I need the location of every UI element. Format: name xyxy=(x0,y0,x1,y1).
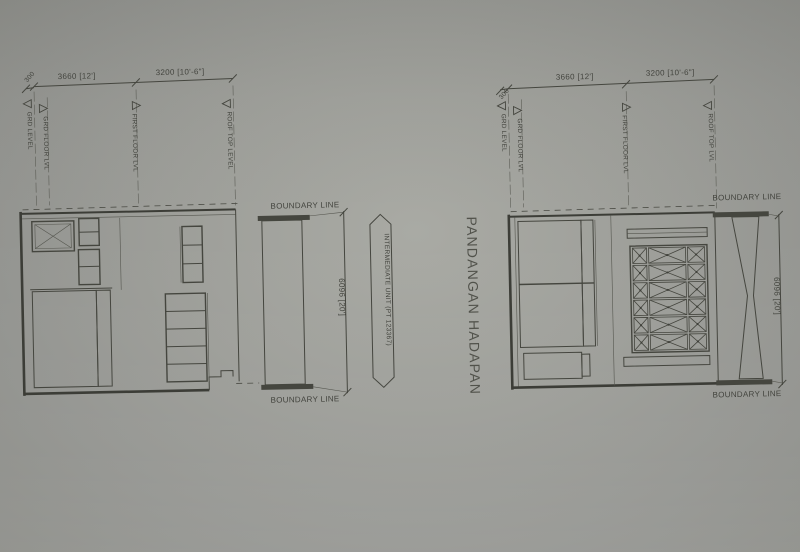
level-marker-icon xyxy=(513,106,521,114)
right-elevation-view: 3660 [12'] 3200 [10'-6"] 300 GRD LEVEL G… xyxy=(496,66,787,404)
low-louvre-panel xyxy=(524,352,591,379)
grd-level-label: GRD LEVEL xyxy=(500,114,508,152)
dim-offset-label: 300 xyxy=(23,70,36,84)
level-marker-icon xyxy=(703,101,711,109)
height-dim-label: 6096 [20'] xyxy=(337,278,347,316)
grd-floor-level-label: GRD FLOOR LVL xyxy=(42,116,50,170)
dim-offset-label: 300 xyxy=(498,88,511,102)
grd-floor-level-label: GRD FLOOR LVL xyxy=(516,118,524,172)
boundary-fence-strip xyxy=(258,215,314,390)
grd-level-label: GRD LEVEL xyxy=(25,112,33,150)
dim-span-right-label: 3200 [10'-6"] xyxy=(156,67,205,77)
level-marker-icon xyxy=(23,100,31,108)
grille-gate xyxy=(621,228,710,367)
height-dim-label: 6096 [20'] xyxy=(772,277,782,315)
glazed-wall-panel xyxy=(518,220,598,348)
boundary-line-bottom-label: BOUNDARY LINE xyxy=(712,389,781,399)
louvre-panel xyxy=(165,293,209,382)
dim-span-left-label: 3660 [12'] xyxy=(556,72,594,82)
level-marker-icon xyxy=(222,100,230,108)
elevation-drawing-svg: 3660 [12'] 3200 [10'-6"] 300 GRD LEVEL G… xyxy=(0,0,800,552)
dim-span-left-label: 3660 [12'] xyxy=(58,71,96,81)
dim-line-top xyxy=(508,79,714,88)
drawing-content: 3660 [12'] 3200 [10'-6"] 300 GRD LEVEL G… xyxy=(18,55,787,414)
main-door xyxy=(30,288,114,388)
boundary-line-bottom-label: BOUNDARY LINE xyxy=(270,394,339,404)
roof-top-level-label: ROOF TOP LEVEL xyxy=(226,111,234,169)
drawing-title: PANDANGAN HADAPAN xyxy=(464,216,484,395)
left-elevation-view: 3660 [12'] 3200 [10'-6"] 300 GRD LEVEL G… xyxy=(18,63,395,410)
window-small-2 xyxy=(78,249,100,284)
level-marker-icon xyxy=(39,104,47,112)
dim-span-right-label: 3200 [10'-6"] xyxy=(646,68,695,78)
first-floor-level-label: FIRST FLOOR LVL xyxy=(621,115,629,174)
window-small-1 xyxy=(79,218,100,245)
level-marker-icon xyxy=(497,102,505,110)
photographed-drawing-sheet: 3660 [12'] 3200 [10'-6"] 300 GRD LEVEL G… xyxy=(0,0,800,552)
boundary-line-top-label: BOUNDARY LINE xyxy=(712,192,781,202)
kerb-step-detail xyxy=(209,371,233,390)
roof-top-level-label: ROOF TOP LVL xyxy=(707,113,715,162)
first-floor-level-label: FIRST FLOOR LVL xyxy=(131,113,139,172)
boundary-fence-strip xyxy=(713,211,773,385)
intermediate-unit-label: INTERMEDIATE UNIT (PT 123367) xyxy=(383,233,392,346)
vent-window xyxy=(32,221,75,252)
window-three-pane xyxy=(180,226,203,282)
boundary-line-top-label: BOUNDARY LINE xyxy=(270,200,339,210)
